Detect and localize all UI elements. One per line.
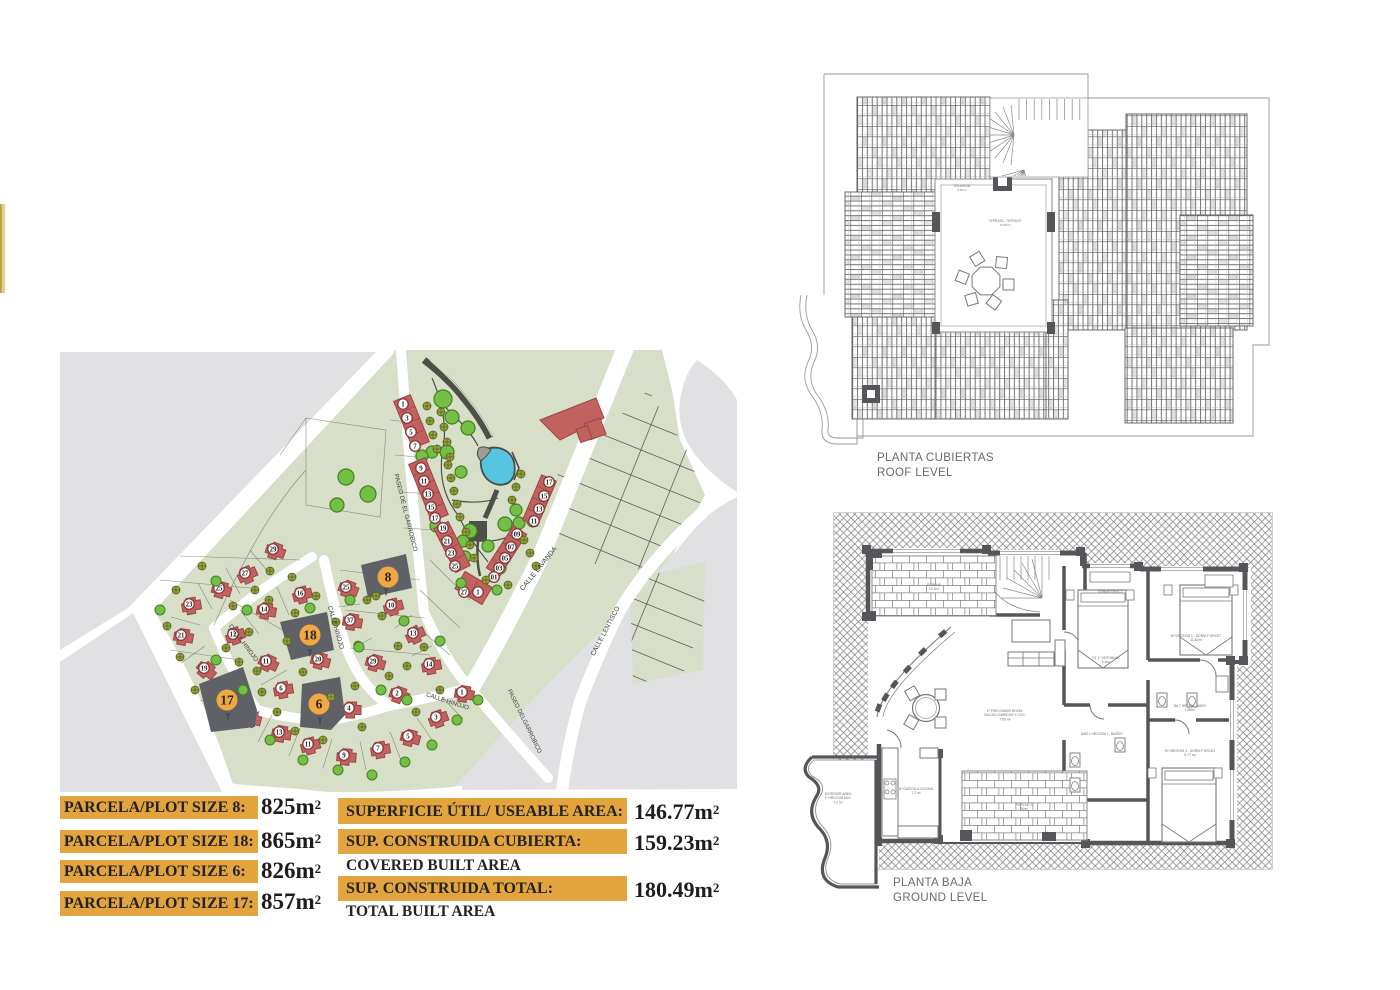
svg-text:5: 5	[406, 733, 410, 740]
svg-text:17: 17	[220, 693, 234, 708]
svg-text:09: 09	[514, 531, 521, 538]
svg-text:23: 23	[448, 550, 455, 557]
svg-text:10: 10	[388, 602, 395, 609]
svg-text:PLANTA BAJA: PLANTA BAJA	[893, 876, 972, 889]
svg-text:1: 1	[401, 401, 405, 408]
svg-text:15: 15	[428, 504, 435, 511]
svg-text:5: 5	[409, 429, 413, 436]
svg-text:11.30m²: 11.30m²	[1190, 638, 1203, 642]
svg-text:10.1m²: 10.1m²	[929, 587, 940, 591]
svg-text:01: 01	[491, 574, 498, 581]
svg-text:11: 11	[263, 658, 270, 665]
svg-text:37: 37	[347, 617, 354, 624]
svg-text:6: 6	[279, 685, 283, 692]
svg-text:7.55 m²: 7.55 m²	[999, 717, 1011, 721]
svg-text:05: 05	[502, 555, 509, 562]
svg-text:14: 14	[261, 606, 268, 613]
svg-text:03: 03	[496, 565, 503, 572]
svg-text:4: 4	[347, 705, 351, 712]
svg-text:1: 1	[460, 689, 464, 696]
svg-text:PLANTA CUBIERTAS: PLANTA CUBIERTAS	[877, 451, 994, 464]
svg-text:3: 3	[405, 415, 409, 422]
svg-text:15: 15	[541, 493, 548, 500]
svg-text:7: 7	[413, 443, 417, 450]
svg-text:10.50m²: 10.50m²	[999, 223, 1010, 227]
svg-text:7.2 m²: 7.2 m²	[833, 800, 843, 804]
svg-text:GROUND LEVEL: GROUND LEVEL	[893, 891, 988, 904]
svg-text:11: 11	[531, 518, 538, 525]
svg-text:13: 13	[410, 630, 417, 637]
svg-text:27: 27	[242, 570, 249, 577]
svg-text:14: 14	[426, 661, 433, 668]
svg-text:11: 11	[421, 478, 428, 485]
svg-text:3: 3	[434, 714, 438, 721]
svg-text:21: 21	[178, 632, 185, 639]
svg-text:21: 21	[444, 538, 451, 545]
svg-text:17: 17	[432, 515, 439, 522]
svg-text:19: 19	[440, 525, 447, 532]
svg-text:ROOF LEVEL: ROOF LEVEL	[877, 466, 953, 479]
svg-text:23: 23	[186, 601, 193, 608]
svg-text:1.80m²: 1.80m²	[1185, 708, 1196, 712]
svg-text:13: 13	[536, 506, 543, 513]
svg-text:1: 1	[476, 589, 480, 596]
svg-text:4.2m²: 4.2m²	[1102, 660, 1111, 664]
svg-text:7: 7	[376, 745, 380, 752]
svg-text:DORMITORIO 1: DORMITORIO 1	[1098, 590, 1122, 594]
svg-text:9: 9	[342, 752, 346, 759]
svg-text:26m²: 26m²	[1020, 807, 1028, 811]
svg-text:16: 16	[297, 590, 304, 597]
svg-text:9: 9	[419, 465, 423, 472]
svg-text:17: 17	[546, 479, 553, 486]
svg-text:07: 07	[508, 544, 515, 551]
svg-text:27: 27	[461, 589, 468, 596]
svg-text:19: 19	[201, 665, 208, 672]
svg-text:8.77 m²: 8.77 m²	[1184, 753, 1196, 757]
svg-text:25: 25	[452, 563, 459, 570]
svg-text:13: 13	[276, 729, 283, 736]
svg-text:18: 18	[303, 628, 317, 643]
svg-text:29: 29	[370, 658, 377, 665]
svg-text:2: 2	[395, 690, 399, 697]
svg-text:13: 13	[425, 491, 432, 498]
svg-text:7.2 m²: 7.2 m²	[911, 791, 921, 795]
svg-text:11: 11	[305, 741, 312, 748]
svg-text:29: 29	[270, 546, 277, 553]
svg-text:25: 25	[343, 584, 350, 591]
svg-text:8: 8	[385, 570, 392, 585]
svg-text:9.87m²: 9.87m²	[957, 188, 966, 192]
svg-text:6: 6	[316, 697, 323, 712]
svg-text:20: 20	[315, 656, 322, 663]
svg-text:BAÑ 1 HRCEOM 1- BA/ÑO7: BAÑ 1 HRCEOM 1- BA/ÑO7	[1081, 731, 1123, 736]
